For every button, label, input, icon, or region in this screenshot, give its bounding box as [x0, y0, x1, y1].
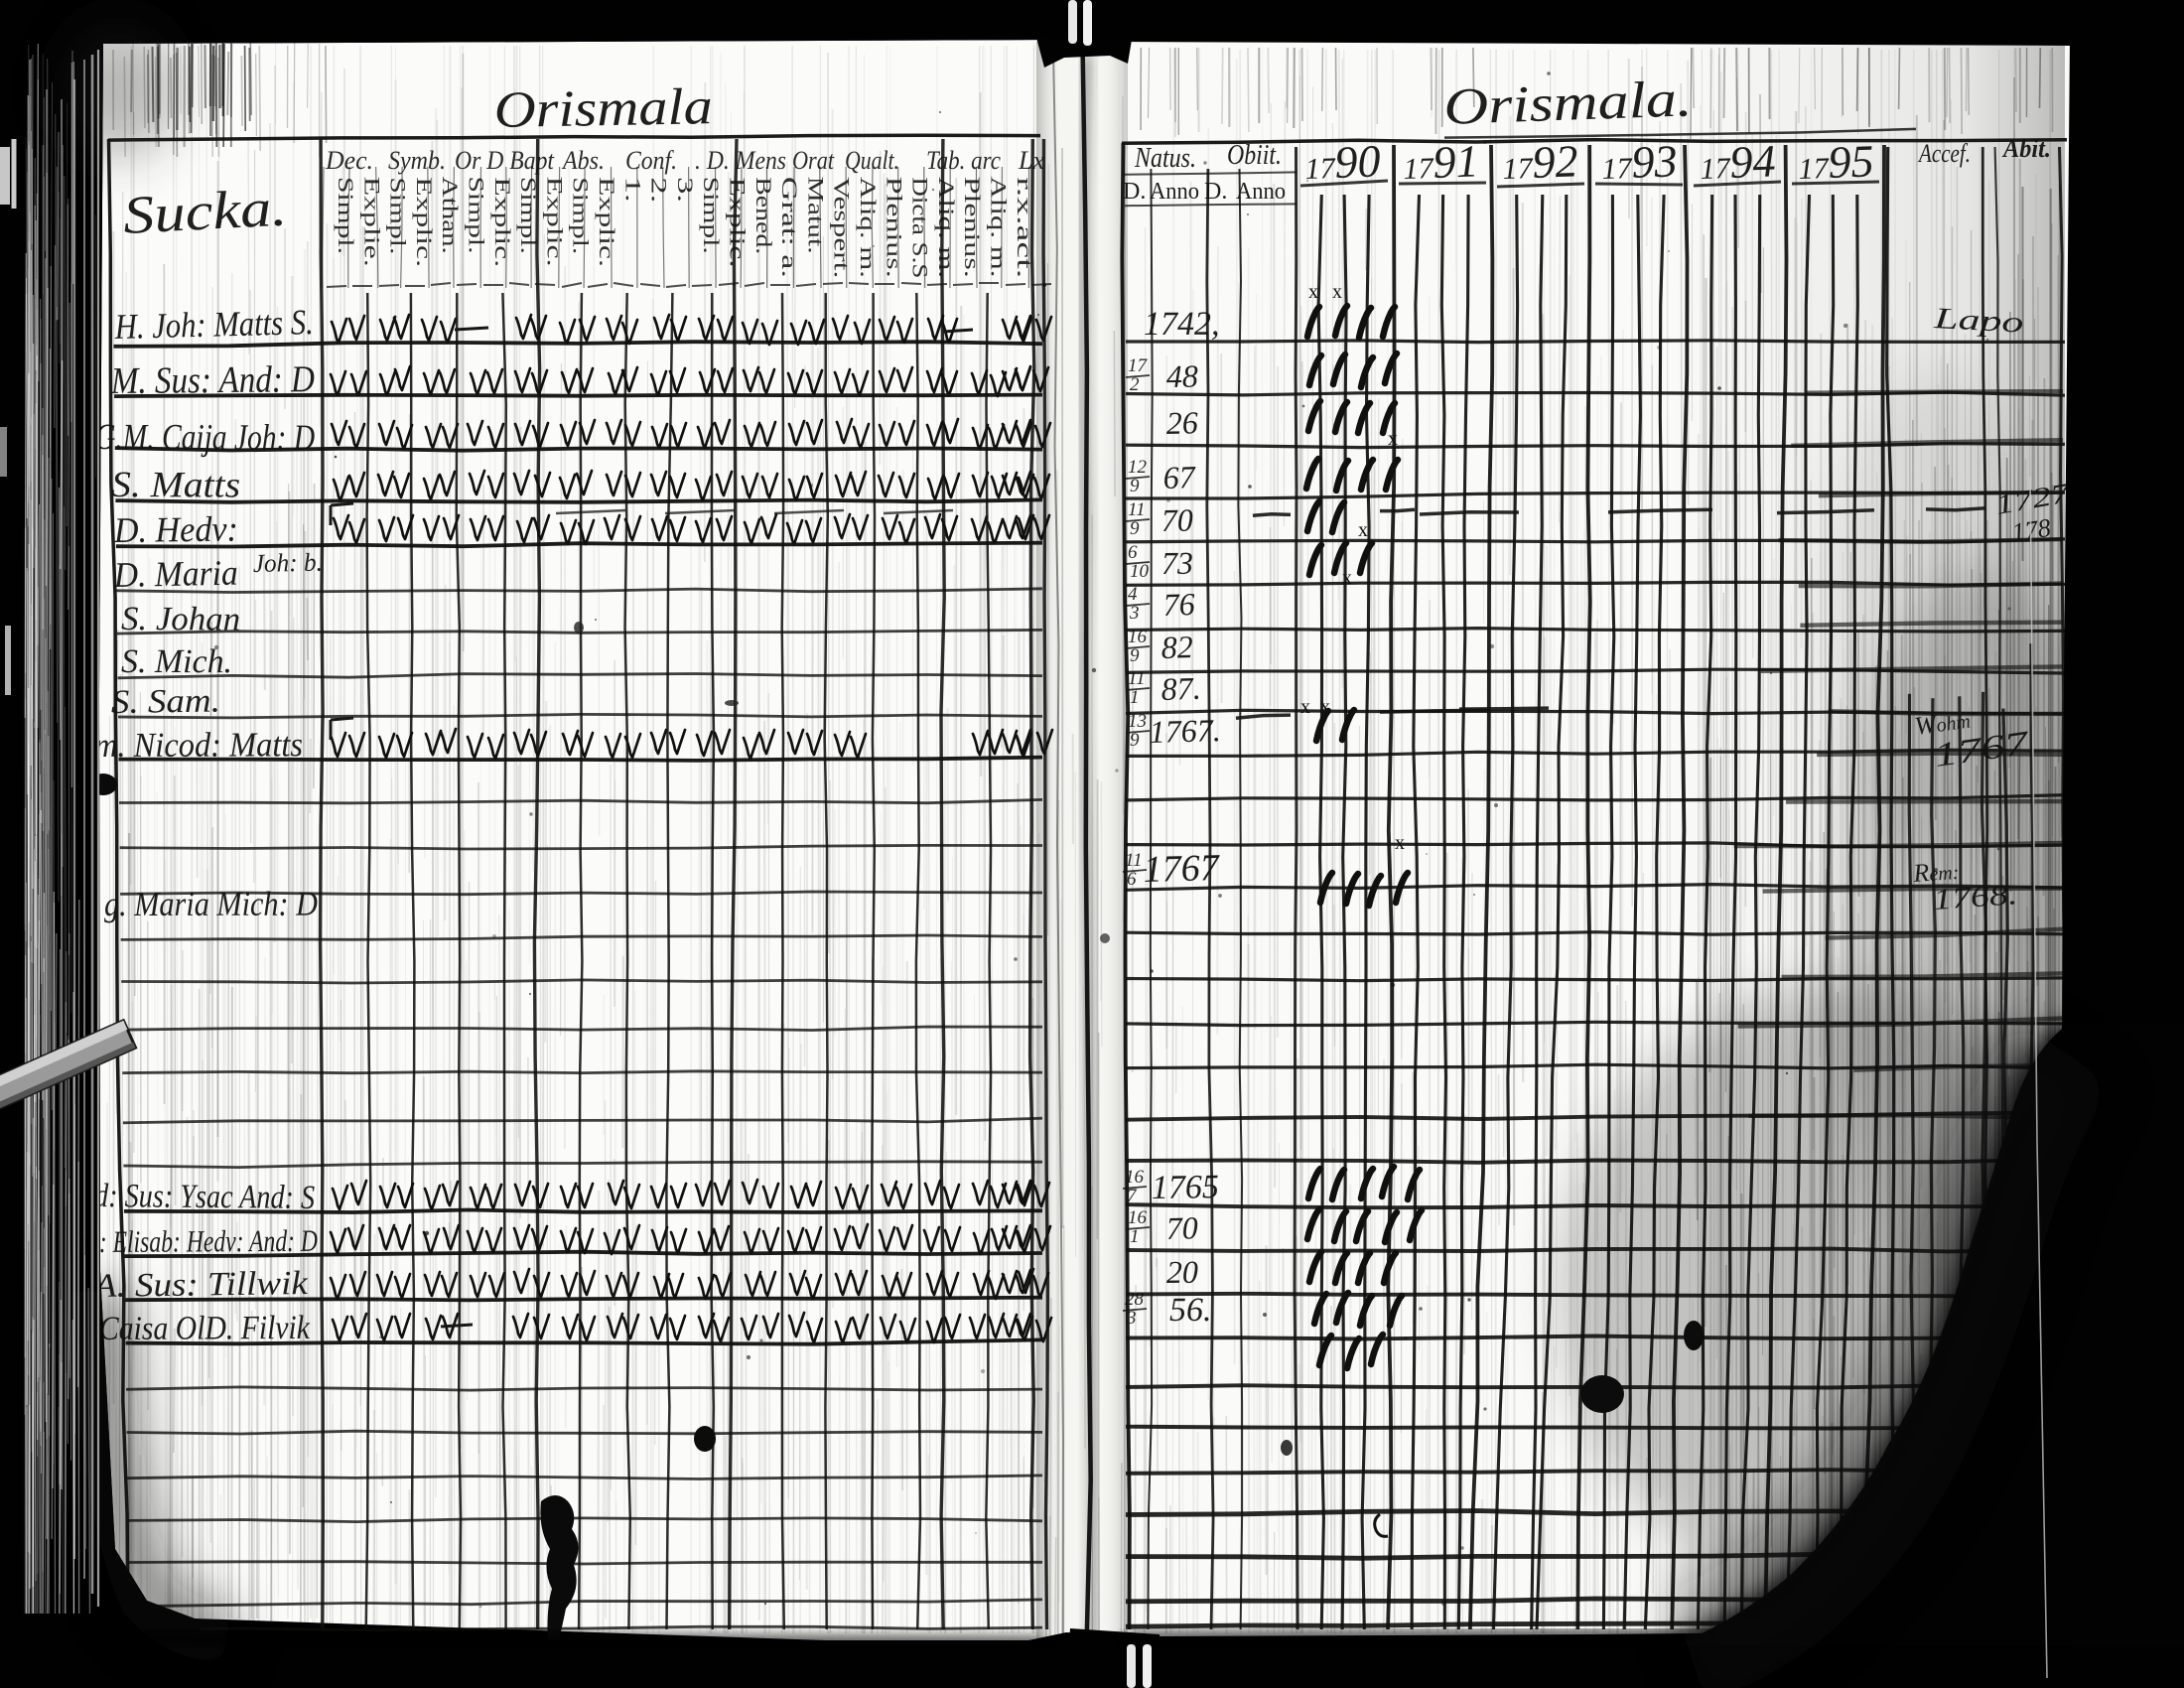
- svg-text:D. Maria: D. Maria: [112, 553, 238, 595]
- svg-text:p: Elisab: Hedv: And: D: p: Elisab: Hedv: And: D: [85, 1223, 318, 1259]
- svg-text:3: 3: [1129, 603, 1140, 624]
- svg-text:48: 48: [1166, 358, 1198, 394]
- svg-text:Aliq. m.: Aliq. m.: [987, 177, 1012, 278]
- svg-text:16: 16: [1128, 627, 1148, 647]
- svg-text:1.: 1.: [620, 177, 645, 203]
- svg-text:Vespert.: Vespert.: [830, 177, 855, 278]
- svg-text:D.: D.: [1204, 179, 1227, 205]
- svg-text:11: 11: [1125, 850, 1143, 871]
- svg-text:16: 16: [1125, 1167, 1145, 1188]
- svg-text:73: 73: [1161, 545, 1193, 581]
- svg-text:Explic.: Explic.: [595, 177, 619, 267]
- svg-text:12: 12: [1128, 457, 1148, 478]
- svg-text:Obiit.: Obiit.: [1227, 140, 1282, 171]
- svg-text:Athan.: Athan.: [438, 177, 463, 254]
- svg-text:76: 76: [1162, 586, 1195, 623]
- svg-text:16: 16: [1128, 1207, 1148, 1228]
- svg-text:D. Hedv:: D. Hedv:: [113, 508, 238, 550]
- svg-text:10: 10: [1130, 561, 1150, 582]
- svg-text:Explic.: Explic.: [542, 177, 567, 267]
- svg-text:Anno: Anno: [1236, 179, 1286, 205]
- svg-text:9: 9: [1130, 518, 1140, 539]
- svg-text:m. Nicod: Matts: m. Nicod: Matts: [94, 725, 303, 765]
- svg-text:11: 11: [1128, 499, 1146, 520]
- svg-text:1: 1: [1130, 687, 1140, 708]
- svg-text:Plenius.: Plenius.: [882, 177, 906, 278]
- svg-text:Simpl.: Simpl.: [386, 177, 411, 254]
- svg-text:Orat: Orat: [792, 146, 835, 175]
- svg-text:H. Joh: Matts S.: H. Joh: Matts S.: [113, 302, 314, 347]
- svg-text:Explie.: Explie.: [359, 177, 384, 267]
- svg-text:Orismala.: Orismala.: [1442, 70, 1693, 136]
- svg-text:17: 17: [1128, 355, 1149, 376]
- svg-text:x: x: [1308, 281, 1318, 303]
- svg-text:20: 20: [1166, 1254, 1198, 1290]
- svg-text:Abs.: Abs.: [561, 146, 605, 175]
- svg-text:Simpl.: Simpl.: [516, 177, 541, 254]
- svg-text:d: Sus: Ysac And: S: d: Sus: Ysac And: S: [94, 1178, 315, 1216]
- svg-text:Natus.: Natus.: [1134, 143, 1196, 174]
- svg-text:g. Maria Mich: D: g. Maria Mich: D: [104, 885, 318, 923]
- svg-text:6: 6: [1128, 542, 1138, 563]
- svg-text:Explic.: Explic.: [726, 178, 751, 268]
- svg-text:9: 9: [1130, 730, 1140, 751]
- svg-text:2: 2: [1130, 374, 1140, 395]
- svg-text:G.M. Caija Joh: D: G.M. Caija Joh: D: [94, 417, 315, 459]
- svg-text:Or D Bapt: Or D Bapt: [455, 146, 555, 175]
- svg-text:Dicta S.S: Dicta S.S: [908, 177, 933, 278]
- svg-text:3: 3: [1126, 1308, 1137, 1329]
- svg-text:Explic.: Explic.: [490, 177, 515, 267]
- svg-text:Accef.: Accef.: [1917, 139, 1971, 168]
- svg-text:Lx: Lx: [1018, 146, 1044, 175]
- svg-text:Matut.: Matut.: [803, 177, 828, 254]
- svg-text:Simpl.: Simpl.: [334, 177, 358, 254]
- svg-text:6: 6: [1127, 869, 1137, 890]
- svg-text:Tab. arc: Tab. arc: [926, 146, 1001, 175]
- svg-text:Aliq. m.: Aliq. m.: [856, 177, 881, 278]
- svg-text:r.x.act.: r.x.act.: [1013, 177, 1037, 278]
- svg-text:Bened.: Bened.: [751, 177, 776, 254]
- svg-text:S. Matts: S. Matts: [111, 465, 240, 505]
- svg-text:Dec.: Dec.: [325, 146, 373, 175]
- svg-text:7: 7: [1127, 1186, 1138, 1206]
- svg-text:Sucka.: Sucka.: [121, 177, 288, 245]
- svg-text:x: x: [1332, 281, 1342, 303]
- svg-text:Simpl.: Simpl.: [465, 177, 489, 254]
- svg-text:. D. Mens: . D. Mens: [695, 146, 786, 175]
- svg-text:Joh: b.: Joh: b.: [253, 548, 324, 578]
- svg-text:Plenius.: Plenius.: [960, 177, 985, 278]
- svg-text:x: x: [1342, 567, 1352, 589]
- svg-text:Anno: Anno: [1150, 179, 1199, 205]
- svg-text:Qualt.: Qualt.: [845, 146, 899, 175]
- svg-text:x: x: [1395, 832, 1405, 854]
- svg-text:87.: 87.: [1160, 670, 1201, 707]
- svg-text:1767.: 1767.: [1149, 712, 1221, 750]
- svg-text:2.: 2.: [647, 177, 672, 203]
- svg-text:26: 26: [1165, 404, 1198, 441]
- svg-text:x: x: [1388, 428, 1398, 450]
- svg-text:1: 1: [1130, 1226, 1140, 1247]
- svg-text:1765: 1765: [1152, 1169, 1220, 1206]
- svg-text:S. Johan: S. Johan: [121, 601, 240, 638]
- svg-text:67: 67: [1162, 459, 1197, 495]
- svg-text:M. Sus: And: D: M. Sus: And: D: [110, 358, 315, 402]
- svg-text:3.: 3.: [673, 177, 698, 203]
- svg-text:S. Sam.: S. Sam.: [111, 682, 221, 721]
- svg-text:Aliq. m.: Aliq. m.: [934, 177, 959, 278]
- svg-text:Abit.: Abit.: [2001, 134, 2051, 163]
- svg-text:11: 11: [1128, 668, 1146, 689]
- svg-text:1742,: 1742,: [1144, 306, 1220, 343]
- svg-text:13: 13: [1128, 711, 1147, 732]
- svg-text:x: x: [1320, 696, 1330, 718]
- svg-text:Explic.: Explic.: [412, 177, 437, 267]
- svg-text:56.: 56.: [1169, 1292, 1212, 1329]
- svg-text:Simpl.: Simpl.: [699, 177, 724, 254]
- svg-text:x: x: [1358, 519, 1368, 541]
- svg-text:Grat: a.: Grat: a.: [777, 177, 802, 278]
- svg-text:9: 9: [1130, 476, 1140, 496]
- svg-text:Simpl.: Simpl.: [569, 177, 594, 254]
- svg-text:Orismala: Orismala: [493, 78, 713, 139]
- svg-text:Lapo: Lapo: [1932, 302, 2024, 340]
- svg-text:x: x: [1300, 696, 1310, 718]
- svg-text:9: 9: [1130, 645, 1140, 666]
- svg-text:1767: 1767: [1143, 847, 1221, 891]
- svg-text:82: 82: [1160, 629, 1193, 665]
- svg-text:28: 28: [1125, 1289, 1145, 1310]
- svg-text:Conf.: Conf.: [625, 146, 677, 175]
- svg-text:4: 4: [1128, 584, 1138, 605]
- svg-text:70: 70: [1160, 501, 1193, 538]
- svg-text:Symb.: Symb.: [388, 146, 446, 175]
- svg-text:D.: D.: [1123, 179, 1146, 205]
- svg-text:1768.: 1768.: [1932, 878, 2018, 916]
- svg-text:70: 70: [1165, 1209, 1198, 1246]
